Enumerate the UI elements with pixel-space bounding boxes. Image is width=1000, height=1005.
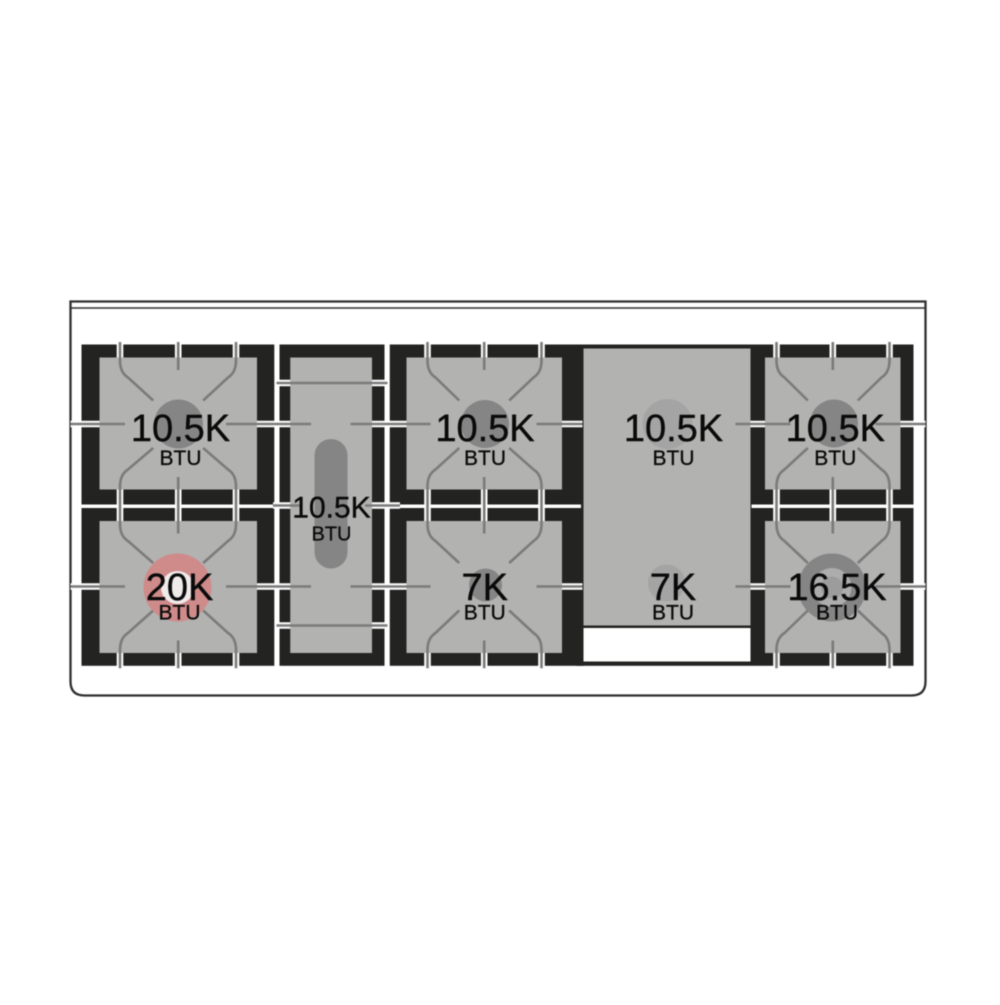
svg-text:BTU: BTU [312,524,352,546]
svg-text:10.5K: 10.5K [131,408,230,450]
svg-text:BTU: BTU [814,447,856,470]
svg-text:BTU: BTU [652,602,694,625]
svg-text:BTU: BTU [160,447,202,470]
svg-text:BTU: BTU [159,602,201,625]
svg-text:BTU: BTU [464,602,506,625]
svg-text:10.5K: 10.5K [624,408,723,450]
svg-text:10.5K: 10.5K [786,408,885,450]
svg-text:BTU: BTU [816,602,858,625]
svg-text:10.5K: 10.5K [292,491,370,524]
svg-text:BTU: BTU [464,447,506,470]
svg-text:10.5K: 10.5K [435,408,534,450]
svg-text:BTU: BTU [653,447,695,470]
